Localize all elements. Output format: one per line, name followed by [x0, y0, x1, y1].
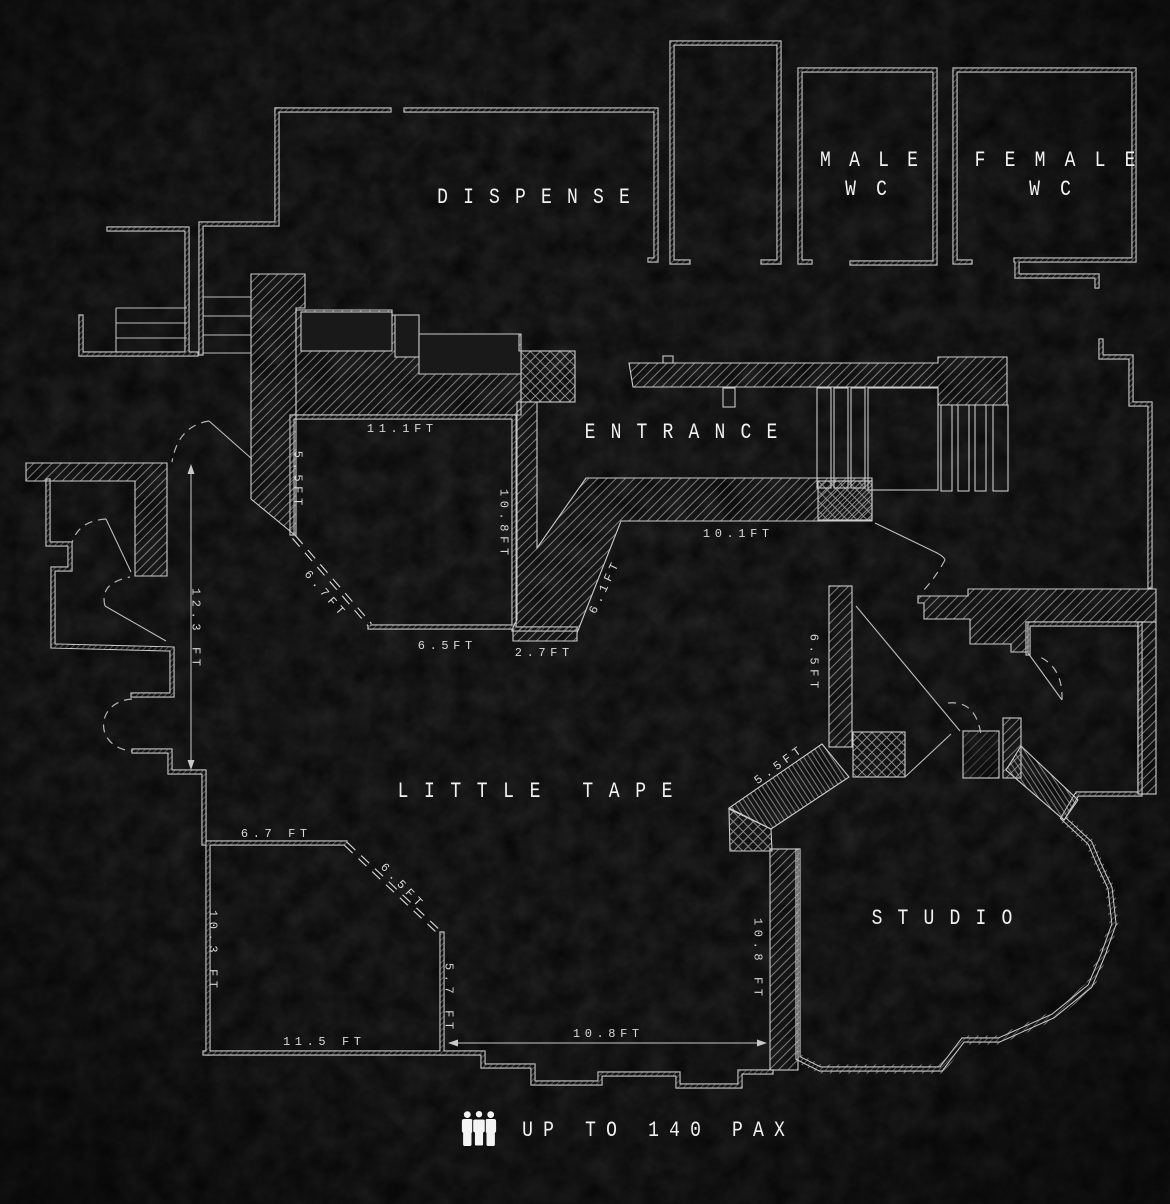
svg-text:10.1FT: 10.1FT [703, 527, 774, 541]
svg-text:ENTRANCE: ENTRANCE [585, 421, 793, 446]
svg-text:5.7 FT: 5.7 FT [442, 963, 456, 1034]
svg-text:10.8FT: 10.8FT [573, 1027, 644, 1041]
svg-text:WC: WC [1029, 178, 1091, 203]
svg-text:UP TO 140 PAX: UP TO 140 PAX [522, 1119, 795, 1144]
svg-text:6.5FT: 6.5FT [807, 634, 821, 693]
svg-text:5.5FT: 5.5FT [291, 451, 305, 510]
svg-text:6.5FT: 6.5FT [418, 639, 477, 653]
svg-text:LITTLE TAPE: LITTLE TAPE [398, 780, 688, 805]
svg-text:FEMALE: FEMALE [975, 149, 1155, 174]
svg-text:10.8FT: 10.8FT [497, 489, 511, 560]
svg-text:6.7 FT: 6.7 FT [241, 827, 312, 841]
svg-text:WC: WC [845, 178, 907, 203]
svg-text:2.7FT: 2.7FT [515, 646, 574, 660]
svg-text:11.5 FT: 11.5 FT [283, 1035, 366, 1049]
svg-text:STUDIO: STUDIO [872, 907, 1028, 932]
svg-text:10.8 FT: 10.8 FT [751, 918, 765, 1001]
svg-text:11.1FT: 11.1FT [367, 422, 438, 436]
svg-text:10.3 FT: 10.3 FT [206, 910, 220, 993]
svg-text:12.3 FT: 12.3 FT [189, 588, 203, 671]
svg-text:MALE: MALE [820, 149, 936, 174]
svg-text:DISPENSE: DISPENSE [437, 186, 645, 211]
